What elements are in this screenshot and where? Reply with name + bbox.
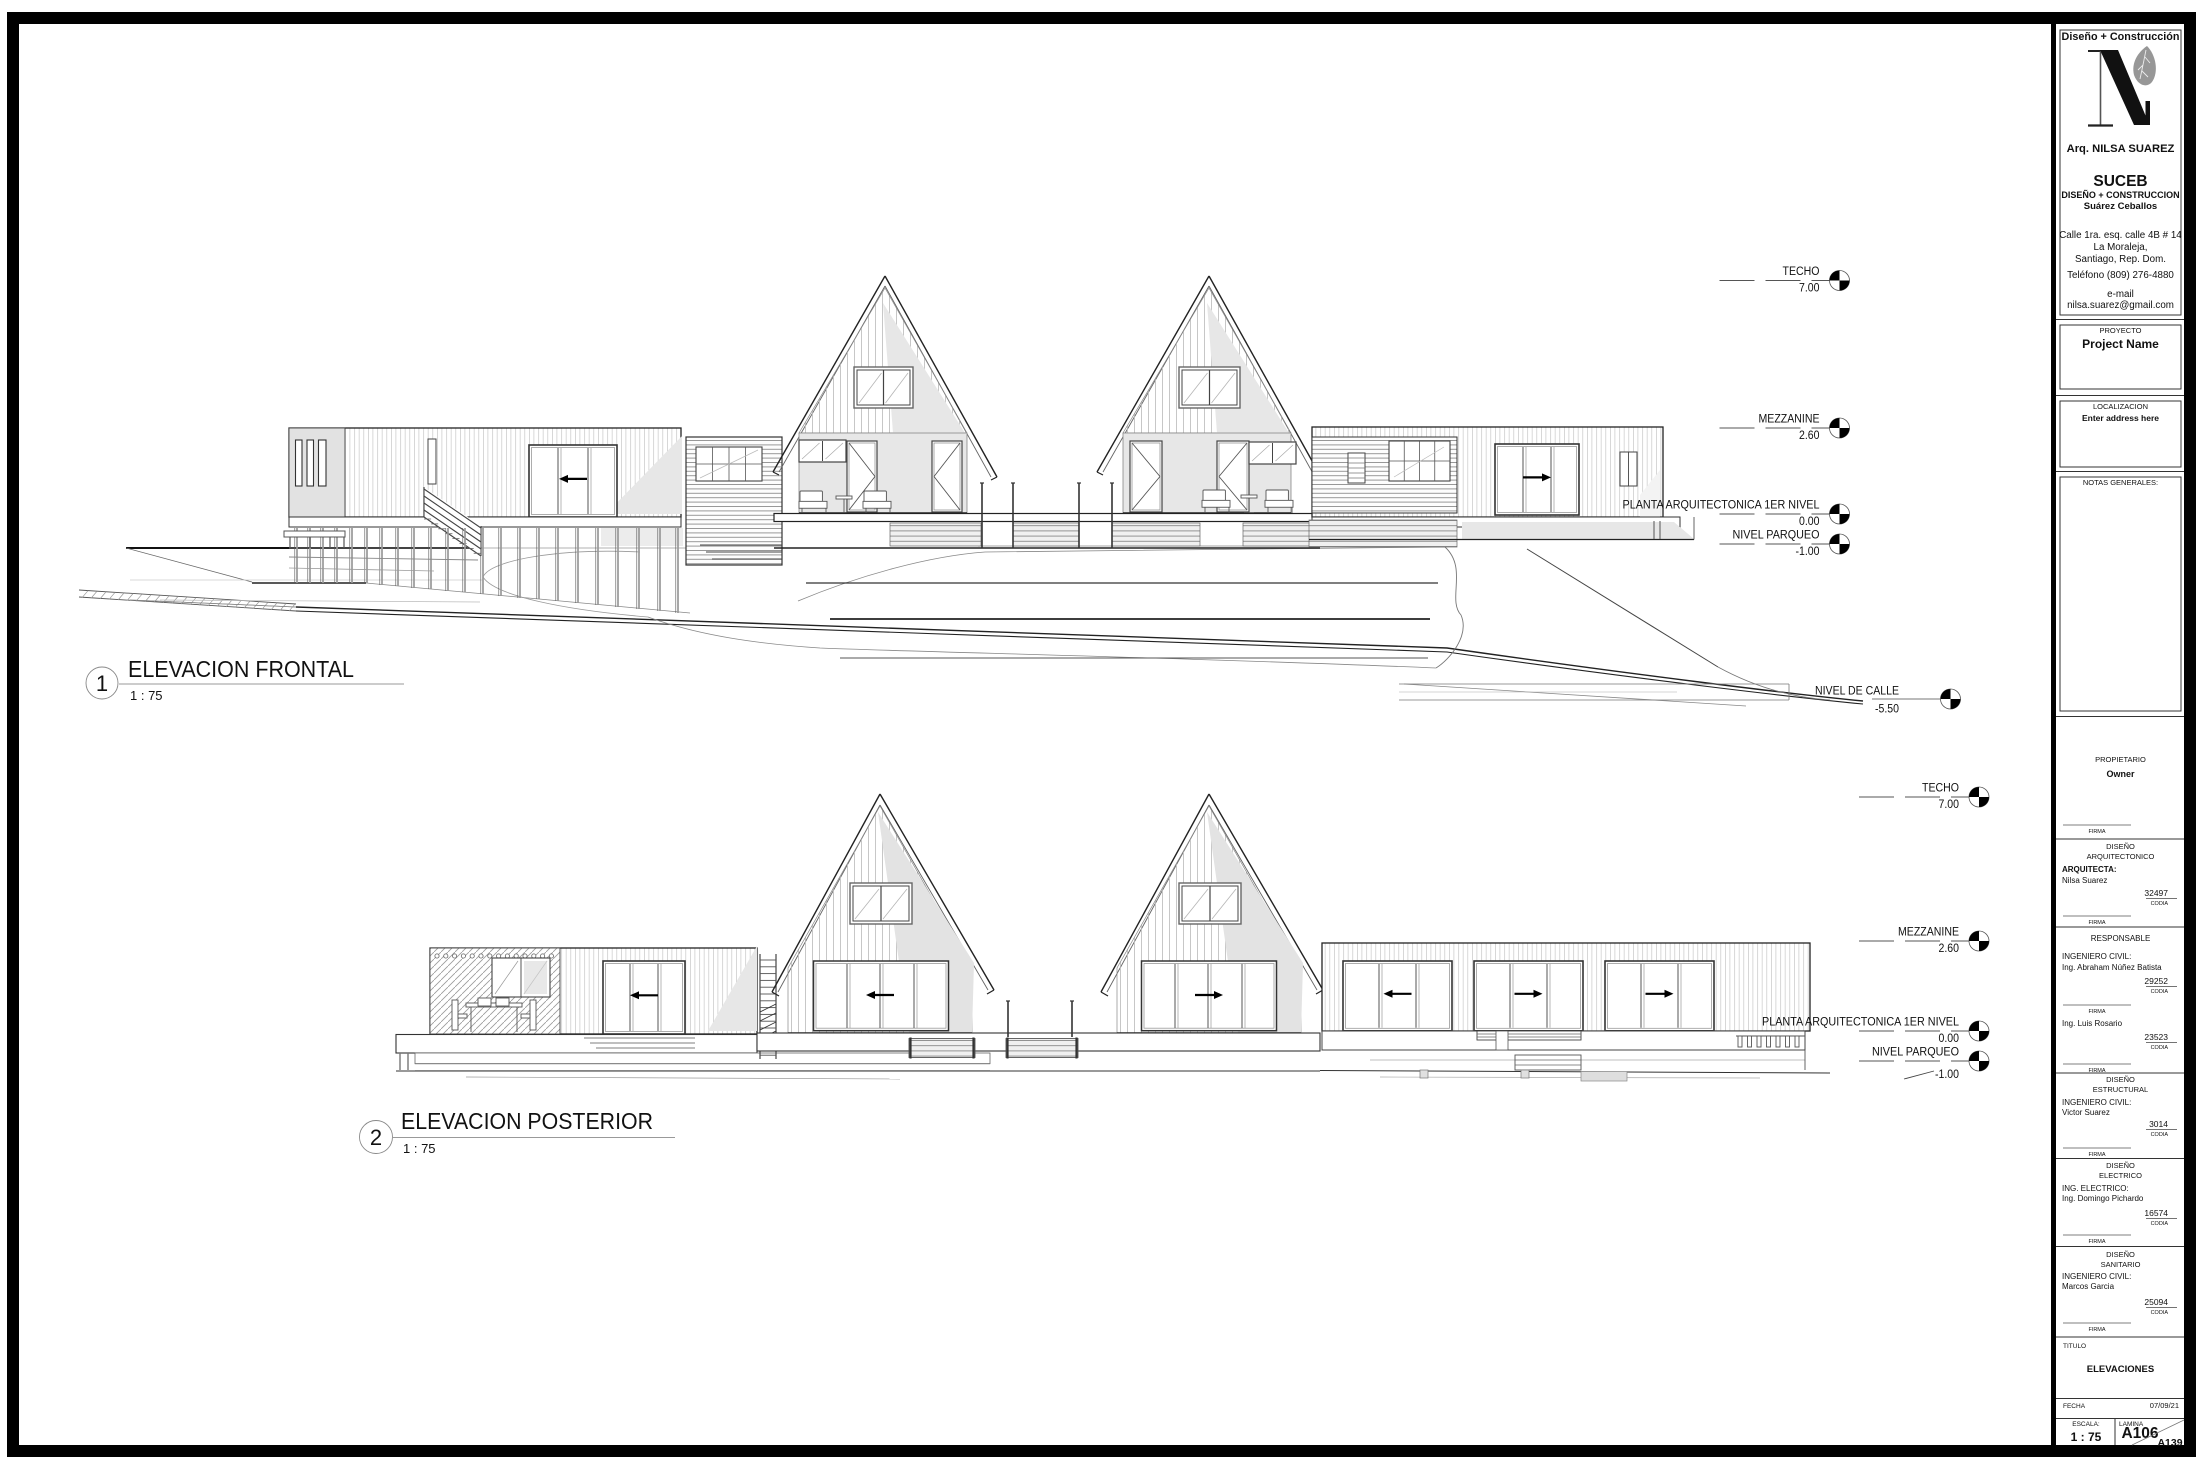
svg-text:Santiago, Rep. Dom.: Santiago, Rep. Dom. [2075,254,2166,265]
svg-text:-1.00: -1.00 [1935,1067,1959,1081]
svg-text:Arq. NILSA SUAREZ: Arq. NILSA SUAREZ [2067,143,2175,155]
svg-text:TECHO: TECHO [1922,781,1959,795]
svg-text:TITULO: TITULO [2063,1343,2086,1350]
svg-text:Owner: Owner [2106,769,2135,779]
svg-text:MEZZANINE: MEZZANINE [1898,925,1959,939]
svg-text:INGENIERO CIVIL:: INGENIERO CIVIL: [2062,1098,2131,1107]
svg-text:RESPONSABLE: RESPONSABLE [2091,934,2151,943]
svg-text:FIRMA: FIRMA [2088,1152,2105,1158]
svg-text:Ing. Domingo Pichardo: Ing. Domingo Pichardo [2062,1194,2144,1203]
svg-text:1 : 75: 1 : 75 [403,1141,436,1156]
svg-text:TECHO: TECHO [1783,264,1820,278]
svg-text:Victor Suarez: Victor Suarez [2062,1108,2110,1117]
svg-text:DISEÑO: DISEÑO [2106,1250,2135,1259]
svg-text:PLANTA ARQUITECTONICA 1ER NIVE: PLANTA ARQUITECTONICA 1ER NIVEL [1623,498,1820,512]
svg-text:PLANTA ARQUITECTONICA 1ER NIVE: PLANTA ARQUITECTONICA 1ER NIVEL [1762,1015,1959,1029]
svg-text:A106: A106 [2121,1425,2158,1442]
svg-text:SUCEB: SUCEB [2093,173,2147,190]
svg-text:Teléfono (809) 276-4880: Teléfono (809) 276-4880 [2067,270,2174,281]
svg-text:CODIA: CODIA [2151,1310,2169,1316]
svg-text:ESTRUCTURAL: ESTRUCTURAL [2093,1085,2148,1094]
svg-text:ARQUITECTONICO: ARQUITECTONICO [2087,852,2155,861]
svg-text:0.00: 0.00 [1799,514,1820,528]
svg-text:PROYECTO: PROYECTO [2100,326,2142,335]
svg-text:ING. ELECTRICO:: ING. ELECTRICO: [2062,1184,2129,1193]
svg-text:Suárez Ceballos: Suárez Ceballos [2084,201,2157,212]
svg-text:SANITARIO: SANITARIO [2101,1260,2141,1269]
svg-text:NIVEL DE CALLE: NIVEL DE CALLE [1815,684,1899,698]
svg-text:2.60: 2.60 [1939,941,1960,955]
svg-text:DISEÑO: DISEÑO [2106,1075,2135,1084]
svg-text:MEZZANINE: MEZZANINE [1759,412,1820,426]
svg-text:ARQUITECTA:: ARQUITECTA: [2062,865,2117,874]
svg-text:INGENIERO CIVIL:: INGENIERO CIVIL: [2062,952,2131,961]
svg-text:FIRMA: FIRMA [2088,1239,2105,1245]
svg-text:Nilsa Suarez: Nilsa Suarez [2062,876,2107,885]
svg-text:25094: 25094 [2144,1297,2168,1307]
svg-text:7.00: 7.00 [1939,797,1960,811]
svg-text:PROPIETARIO: PROPIETARIO [2095,755,2146,764]
svg-text:1 : 75: 1 : 75 [2071,1430,2102,1444]
svg-text:La Moraleja,: La Moraleja, [2094,242,2148,253]
svg-text:7.00: 7.00 [1799,281,1820,295]
svg-text:23523: 23523 [2144,1032,2168,1042]
svg-text:16574: 16574 [2144,1208,2168,1218]
svg-text:Marcos Garcia: Marcos Garcia [2062,1282,2115,1291]
svg-text:Ing. Abraham Núñez Batista: Ing. Abraham Núñez Batista [2062,963,2162,972]
svg-text:-1.00: -1.00 [1796,544,1820,558]
svg-text:CODIA: CODIA [2151,1132,2169,1138]
svg-text:ELEVACIONES: ELEVACIONES [2087,1364,2154,1375]
svg-text:A139: A139 [2157,1437,2182,1449]
svg-text:Ing. Luis Rosario: Ing. Luis Rosario [2062,1019,2123,1028]
svg-text:-5.50: -5.50 [1875,702,1899,716]
svg-text:CODIA: CODIA [2151,989,2169,995]
svg-text:ELECTRICO: ELECTRICO [2099,1171,2142,1180]
svg-text:CODIA: CODIA [2151,1221,2169,1227]
svg-text:ESCALA:: ESCALA: [2072,1421,2100,1428]
svg-text:CODIA: CODIA [2151,1045,2169,1051]
svg-text:1 : 75: 1 : 75 [130,688,163,703]
svg-text:DISEÑO: DISEÑO [2106,1161,2135,1170]
svg-text:32497: 32497 [2144,888,2168,898]
svg-text:FECHA: FECHA [2063,1403,2086,1410]
svg-text:NIVEL PARQUEO: NIVEL PARQUEO [1872,1045,1959,1059]
svg-text:Enter address here: Enter address here [2082,413,2159,423]
svg-text:LOCALIZACION: LOCALIZACION [2093,402,2148,411]
svg-text:FIRMA: FIRMA [2088,1327,2105,1333]
svg-text:0.00: 0.00 [1939,1031,1960,1045]
svg-text:3014: 3014 [2149,1119,2168,1129]
svg-text:ELEVACION POSTERIOR: ELEVACION POSTERIOR [401,1108,653,1134]
svg-text:DISEÑO: DISEÑO [2106,842,2135,851]
svg-text:Diseño + Construcción: Diseño + Construcción [2062,31,2180,43]
svg-text:Calle 1ra. esq. calle 4B # 14: Calle 1ra. esq. calle 4B # 14 [2059,230,2182,241]
svg-text:CODIA: CODIA [2151,901,2169,907]
svg-text:NOTAS GENERALES:: NOTAS GENERALES: [2083,478,2158,487]
svg-text:07/09/21: 07/09/21 [2150,1401,2179,1410]
svg-text:2.60: 2.60 [1799,428,1820,442]
svg-text:FIRMA: FIRMA [2088,920,2105,926]
svg-text:e-mail: e-mail [2107,289,2134,300]
svg-text:29252: 29252 [2144,976,2168,986]
svg-text:FIRMA: FIRMA [2088,1009,2105,1015]
svg-text:FIRMA: FIRMA [2088,829,2105,835]
svg-text:DISEÑO + CONSTRUCCION: DISEÑO + CONSTRUCCION [2061,190,2179,200]
svg-text:INGENIERO CIVIL:: INGENIERO CIVIL: [2062,1272,2131,1281]
svg-text:1: 1 [96,671,108,696]
svg-text:ELEVACION FRONTAL: ELEVACION FRONTAL [128,656,354,682]
svg-text:2: 2 [370,1125,382,1150]
svg-text:Project Name: Project Name [2082,337,2159,351]
svg-text:NIVEL PARQUEO: NIVEL PARQUEO [1733,528,1820,542]
svg-text:nilsa.suarez@gmail.com: nilsa.suarez@gmail.com [2067,300,2174,311]
